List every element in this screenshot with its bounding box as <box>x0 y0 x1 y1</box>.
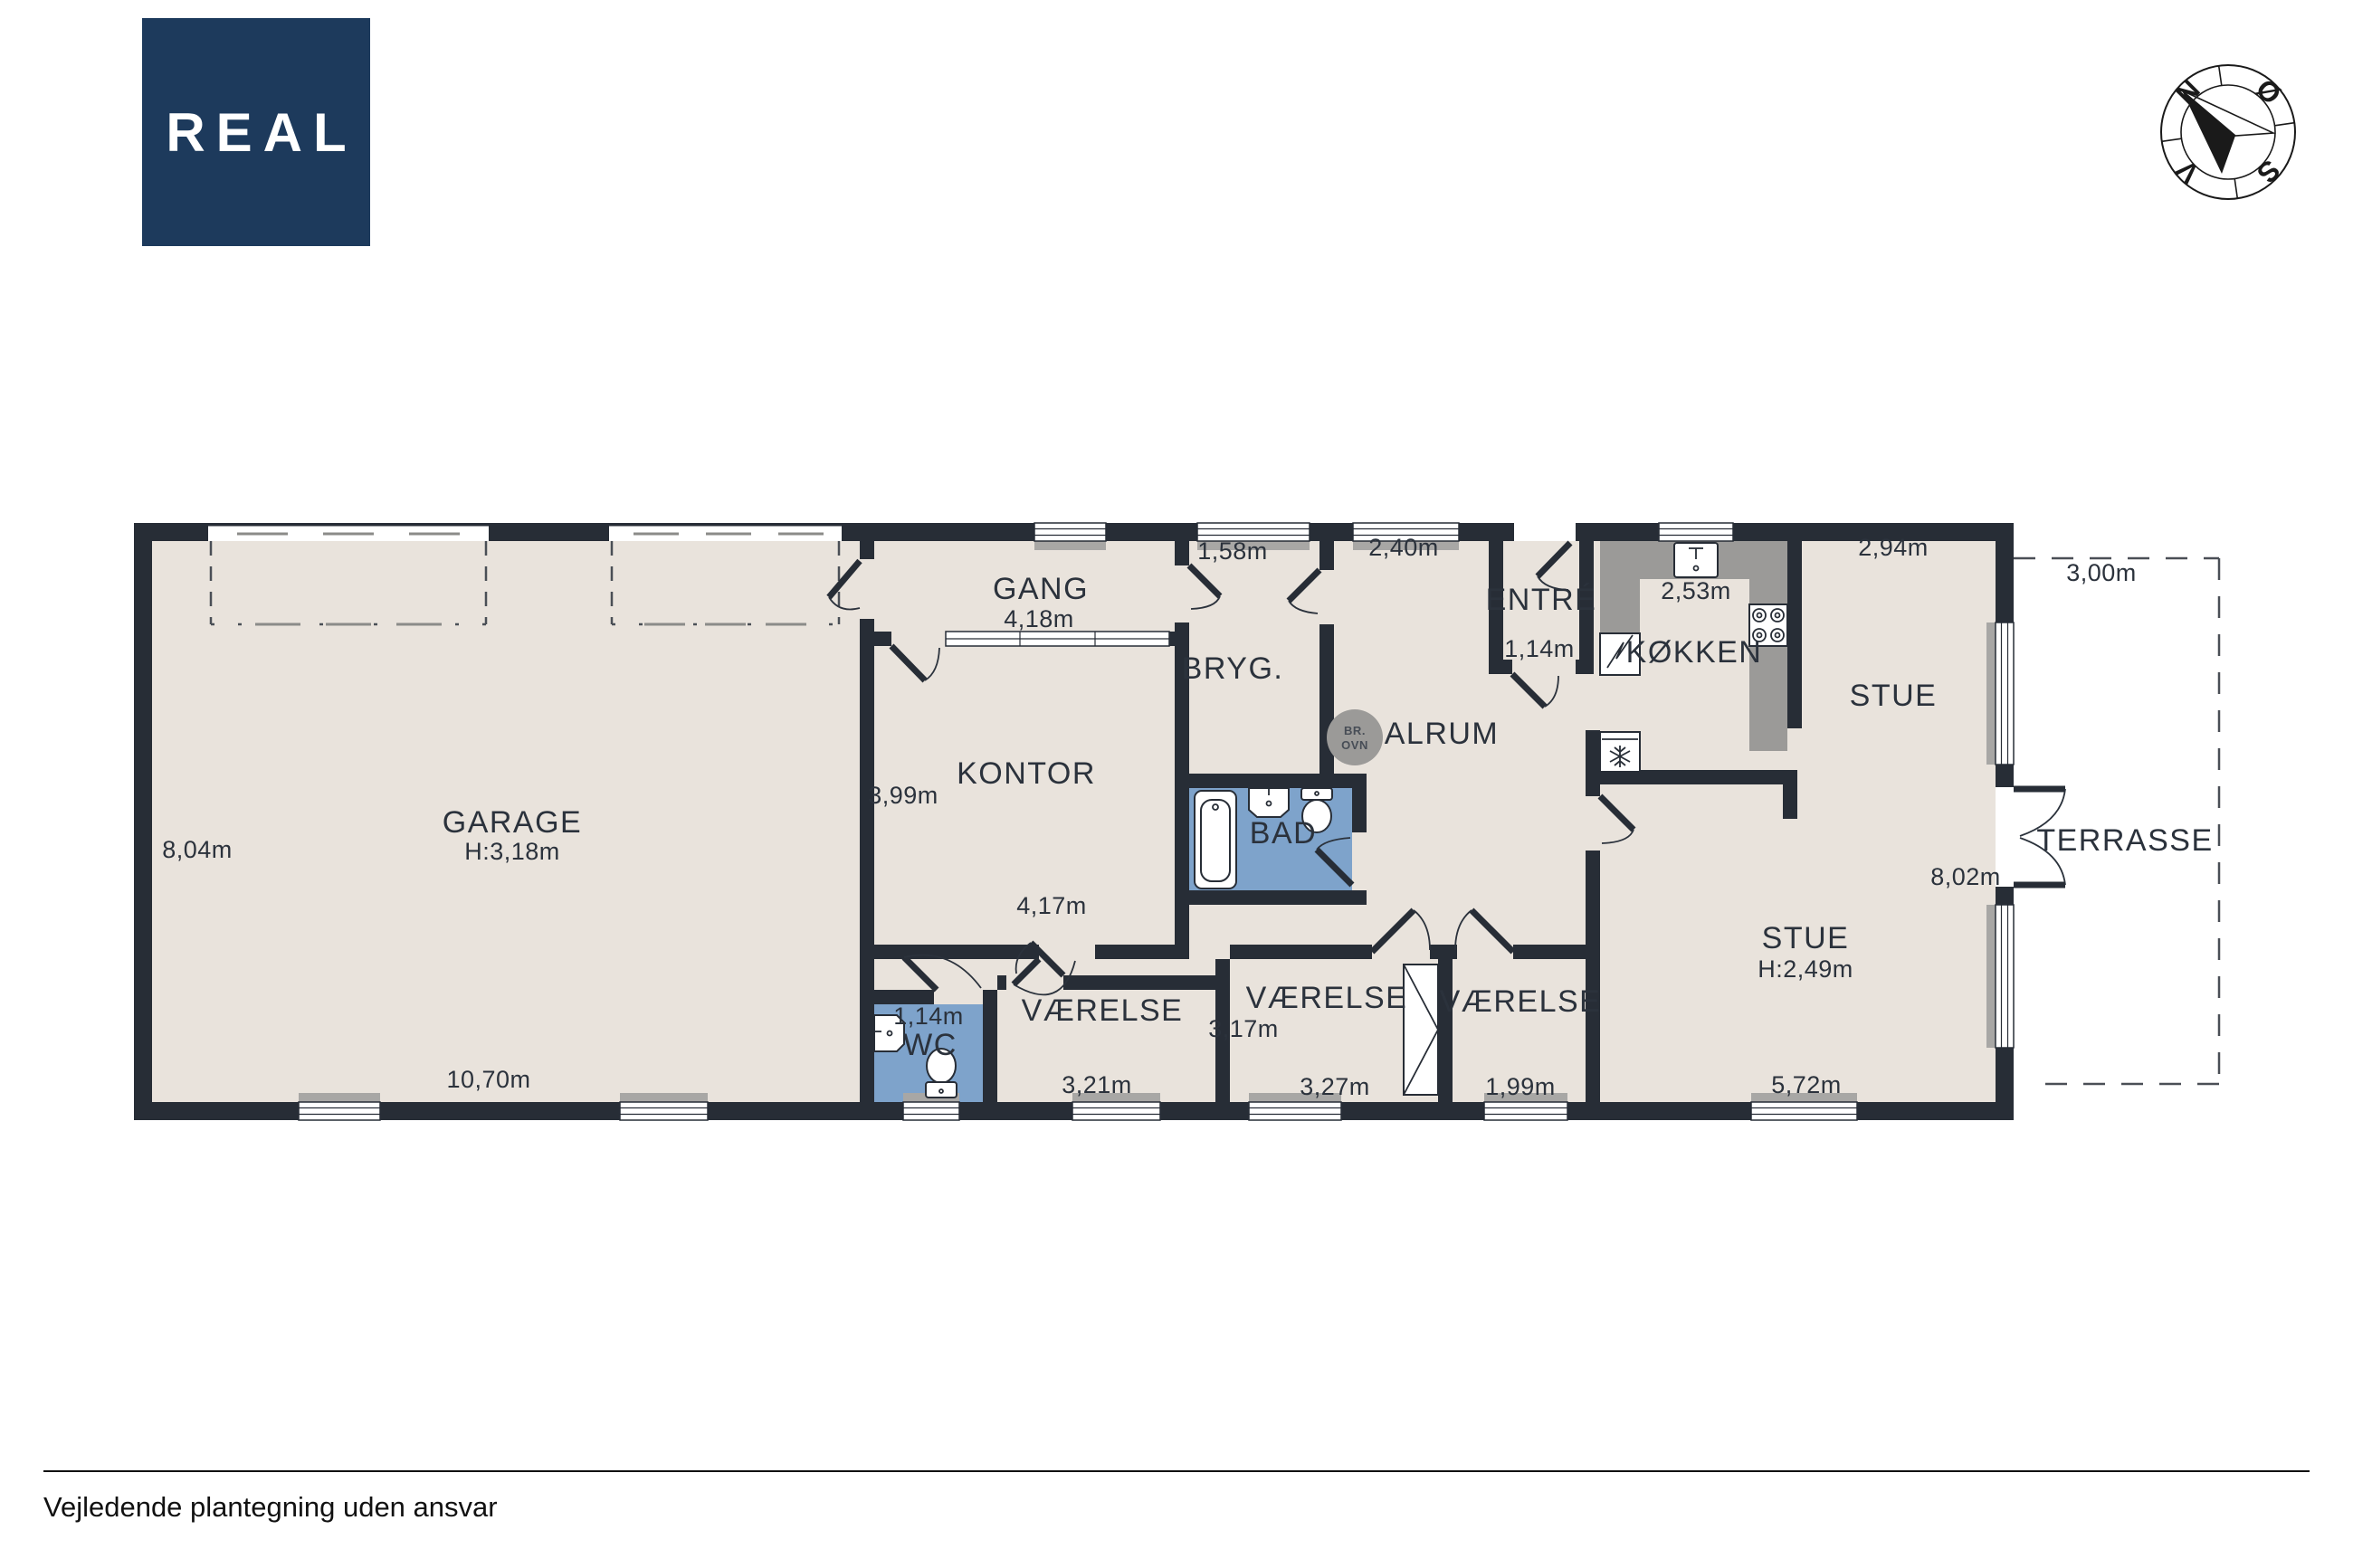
bathtub-icon <box>1195 791 1236 889</box>
garage-label: GARAGE <box>443 805 582 840</box>
bryg-label: BRYG. <box>1182 651 1284 686</box>
bad-label: BAD <box>1250 816 1317 851</box>
terrasse-dim: 3,00m <box>2066 559 2137 586</box>
window-kokken <box>1659 523 1733 541</box>
window-gang <box>1034 523 1106 550</box>
bryg-dim: 1,58m <box>1197 537 1268 565</box>
wc-label: WC <box>903 1028 957 1062</box>
wood-stove-icon: BR. OVN <box>1327 709 1383 765</box>
stue-top-dim: 2,94m <box>1858 534 1929 561</box>
stue-dim-bottom: 5,72m <box>1771 1071 1842 1098</box>
vaerelse1-label: VÆRELSE <box>1022 993 1184 1028</box>
stue-top-label: STUE <box>1850 679 1938 713</box>
window-garage-b1 <box>299 1093 380 1120</box>
kontor-label: KONTOR <box>957 756 1096 791</box>
entre-dim: 1,14m <box>1504 635 1575 662</box>
internal-window-kontor <box>946 632 1169 646</box>
entre-label: ENTRÉ <box>1486 583 1597 617</box>
compass-east-label: Ø <box>2250 72 2288 110</box>
wood-stove-label-1: BR. <box>1344 724 1366 737</box>
window-garage-b2 <box>620 1093 708 1120</box>
stue-dim-right: 8,02m <box>1930 863 2001 890</box>
vaerelse2-label: VÆRELSE <box>1246 981 1408 1015</box>
compass-rose: N Ø S V <box>2161 65 2295 199</box>
wc-dim: 1,14m <box>893 1003 964 1030</box>
stue-label: STUE <box>1762 921 1850 955</box>
vaerelse3-dim: 1,99m <box>1485 1073 1556 1100</box>
vaerelse1-dim: 3,21m <box>1062 1071 1132 1098</box>
floorplan-page: REAL N Ø S V <box>0 0 2353 1568</box>
window-stue-r2 <box>1986 905 2014 1048</box>
kontor-dim-bottom: 4,17m <box>1016 892 1087 919</box>
footer-divider <box>43 1470 2310 1472</box>
compass-north-label: N <box>2169 73 2206 110</box>
terrasse-outline <box>2014 558 2219 1084</box>
alrum-dim: 2,40m <box>1368 534 1439 561</box>
alrum-label: ALRUM <box>1385 717 1500 751</box>
vaerelse3-label: VÆRELSE <box>1440 984 1602 1019</box>
bad-sink-icon <box>1249 788 1289 817</box>
window-stue-r1 <box>1986 622 2014 765</box>
stue-ceiling: H:2,49m <box>1758 955 1853 983</box>
garage-dim-bottom: 10,70m <box>446 1066 530 1093</box>
closet-icon <box>1404 965 1438 1095</box>
gang-dim: 4,18m <box>1004 605 1074 632</box>
fridge-icon <box>1600 732 1640 772</box>
gang-label: GANG <box>993 572 1089 606</box>
floorplan-drawing: N Ø S V <box>0 0 2353 1568</box>
garage-dim-left: 8,04m <box>162 836 233 863</box>
kokken-label: KØKKEN <box>1626 635 1763 670</box>
terrasse-label: TERRASSE <box>2036 823 2213 858</box>
compass-south-label: S <box>2251 154 2286 189</box>
garage-ceiling: H:3,18m <box>464 838 560 865</box>
compass-west-label: V <box>2169 154 2205 190</box>
kontor-dim-left: 3,99m <box>868 782 938 809</box>
wood-stove-label-2: OVN <box>1341 738 1368 752</box>
kokken-dim: 2,53m <box>1661 577 1731 604</box>
vaerelse2-dim-bottom: 3,27m <box>1300 1073 1370 1100</box>
kitchen-sink-icon <box>1674 543 1718 577</box>
footer-disclaimer: Vejledende plantegning uden ansvar <box>43 1491 498 1524</box>
vaerelse2-dim-left: 3,17m <box>1208 1015 1279 1042</box>
